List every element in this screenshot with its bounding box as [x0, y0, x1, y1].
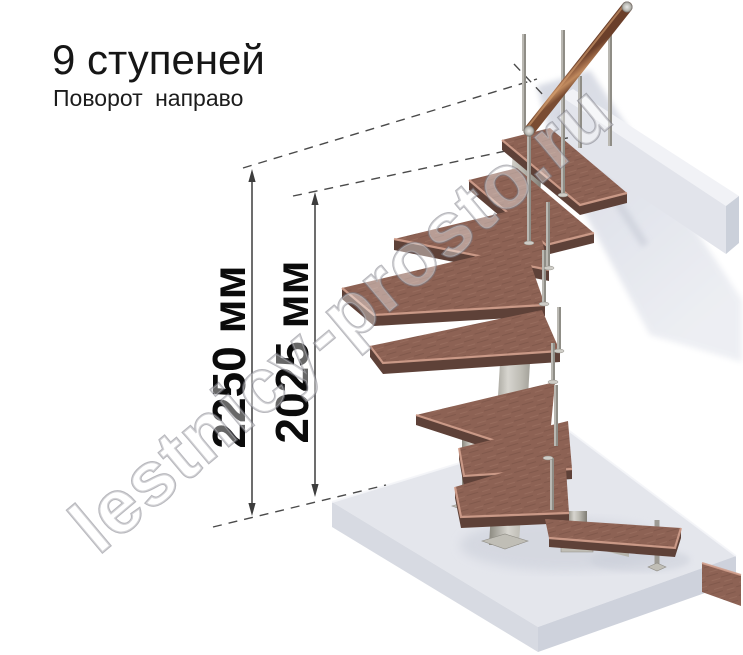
- reference-line-fork: [514, 64, 546, 98]
- arrow-up-icon: [248, 169, 255, 182]
- arrow-down-icon: [311, 484, 318, 497]
- upper-floor-beam-end: [726, 196, 739, 254]
- page-title: 9 ступеней: [52, 36, 265, 83]
- page-subtitle: Поворот направо: [53, 85, 243, 111]
- staircase-diagram-page: 2250 мм 2025 мм lestnicy-prosto.ru 9 сту…: [0, 0, 743, 655]
- arrow-down-icon: [248, 503, 255, 516]
- title-block: 9 ступеней Поворот направо: [52, 36, 265, 111]
- handrail-endcap-top: [622, 2, 632, 12]
- arrow-up-icon: [311, 192, 318, 205]
- staircase-3d-diagram: 2250 мм 2025 мм lestnicy-prosto.ru 9 сту…: [0, 0, 743, 655]
